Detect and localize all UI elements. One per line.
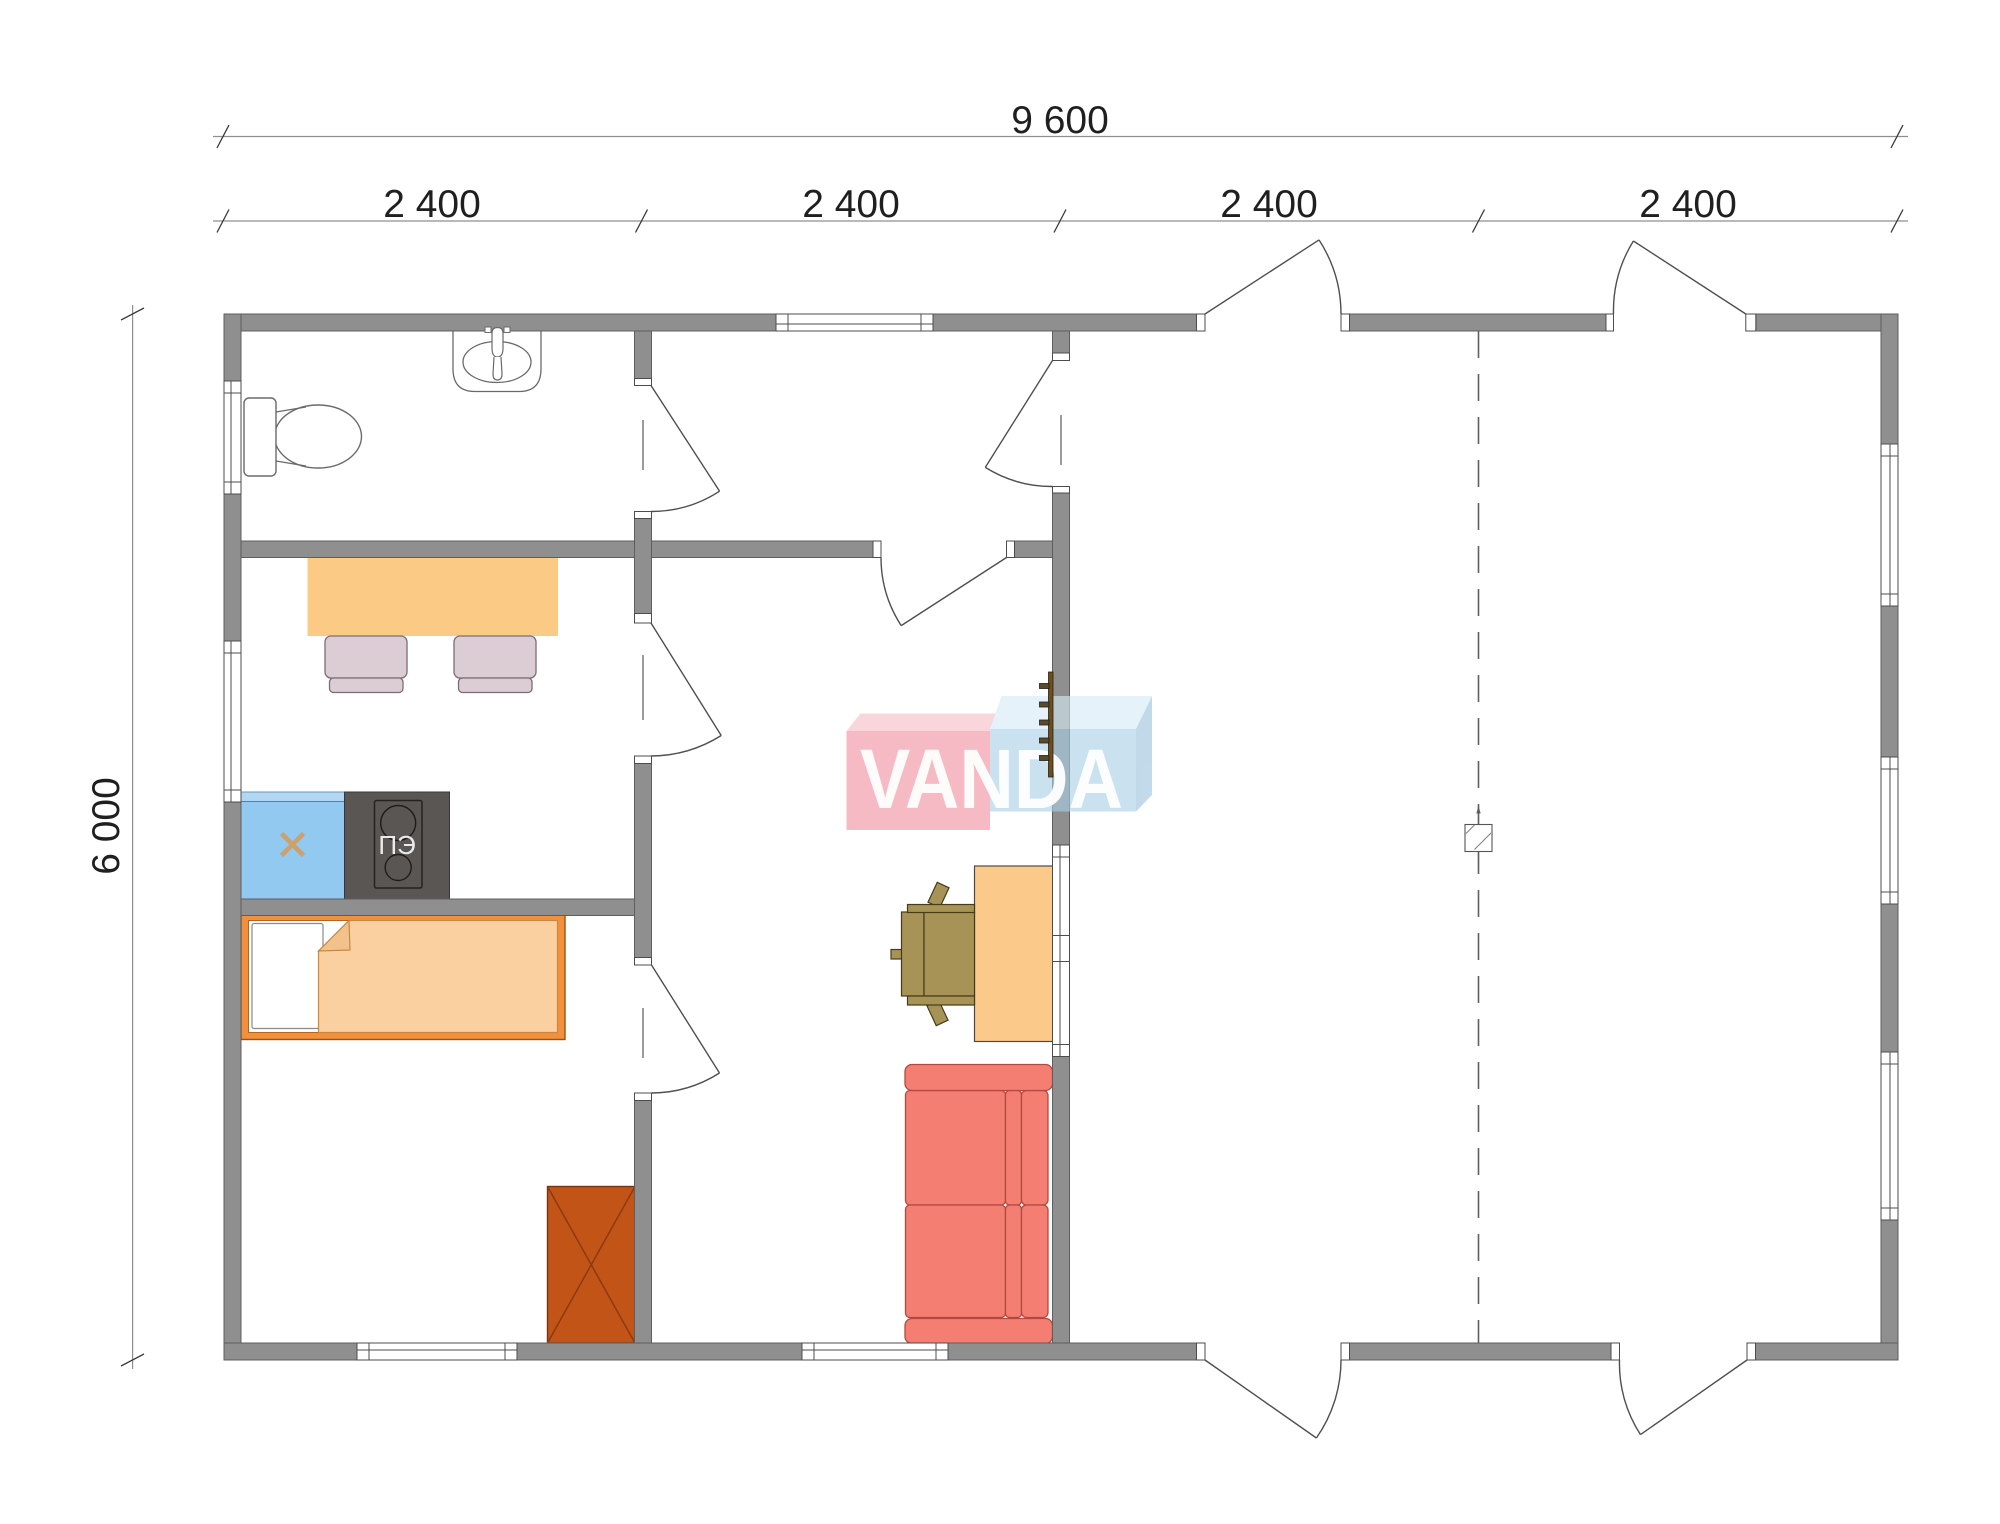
- svg-text:9 600: 9 600: [1011, 99, 1109, 142]
- svg-text:2 400: 2 400: [1639, 183, 1737, 226]
- svg-text:2 400: 2 400: [802, 183, 900, 226]
- svg-text:VANDA: VANDA: [860, 732, 1123, 826]
- svg-text:ПЭ: ПЭ: [378, 830, 415, 860]
- svg-text:2 400: 2 400: [1220, 183, 1318, 226]
- svg-text:2 400: 2 400: [383, 183, 481, 226]
- svg-text:6 000: 6 000: [85, 777, 128, 875]
